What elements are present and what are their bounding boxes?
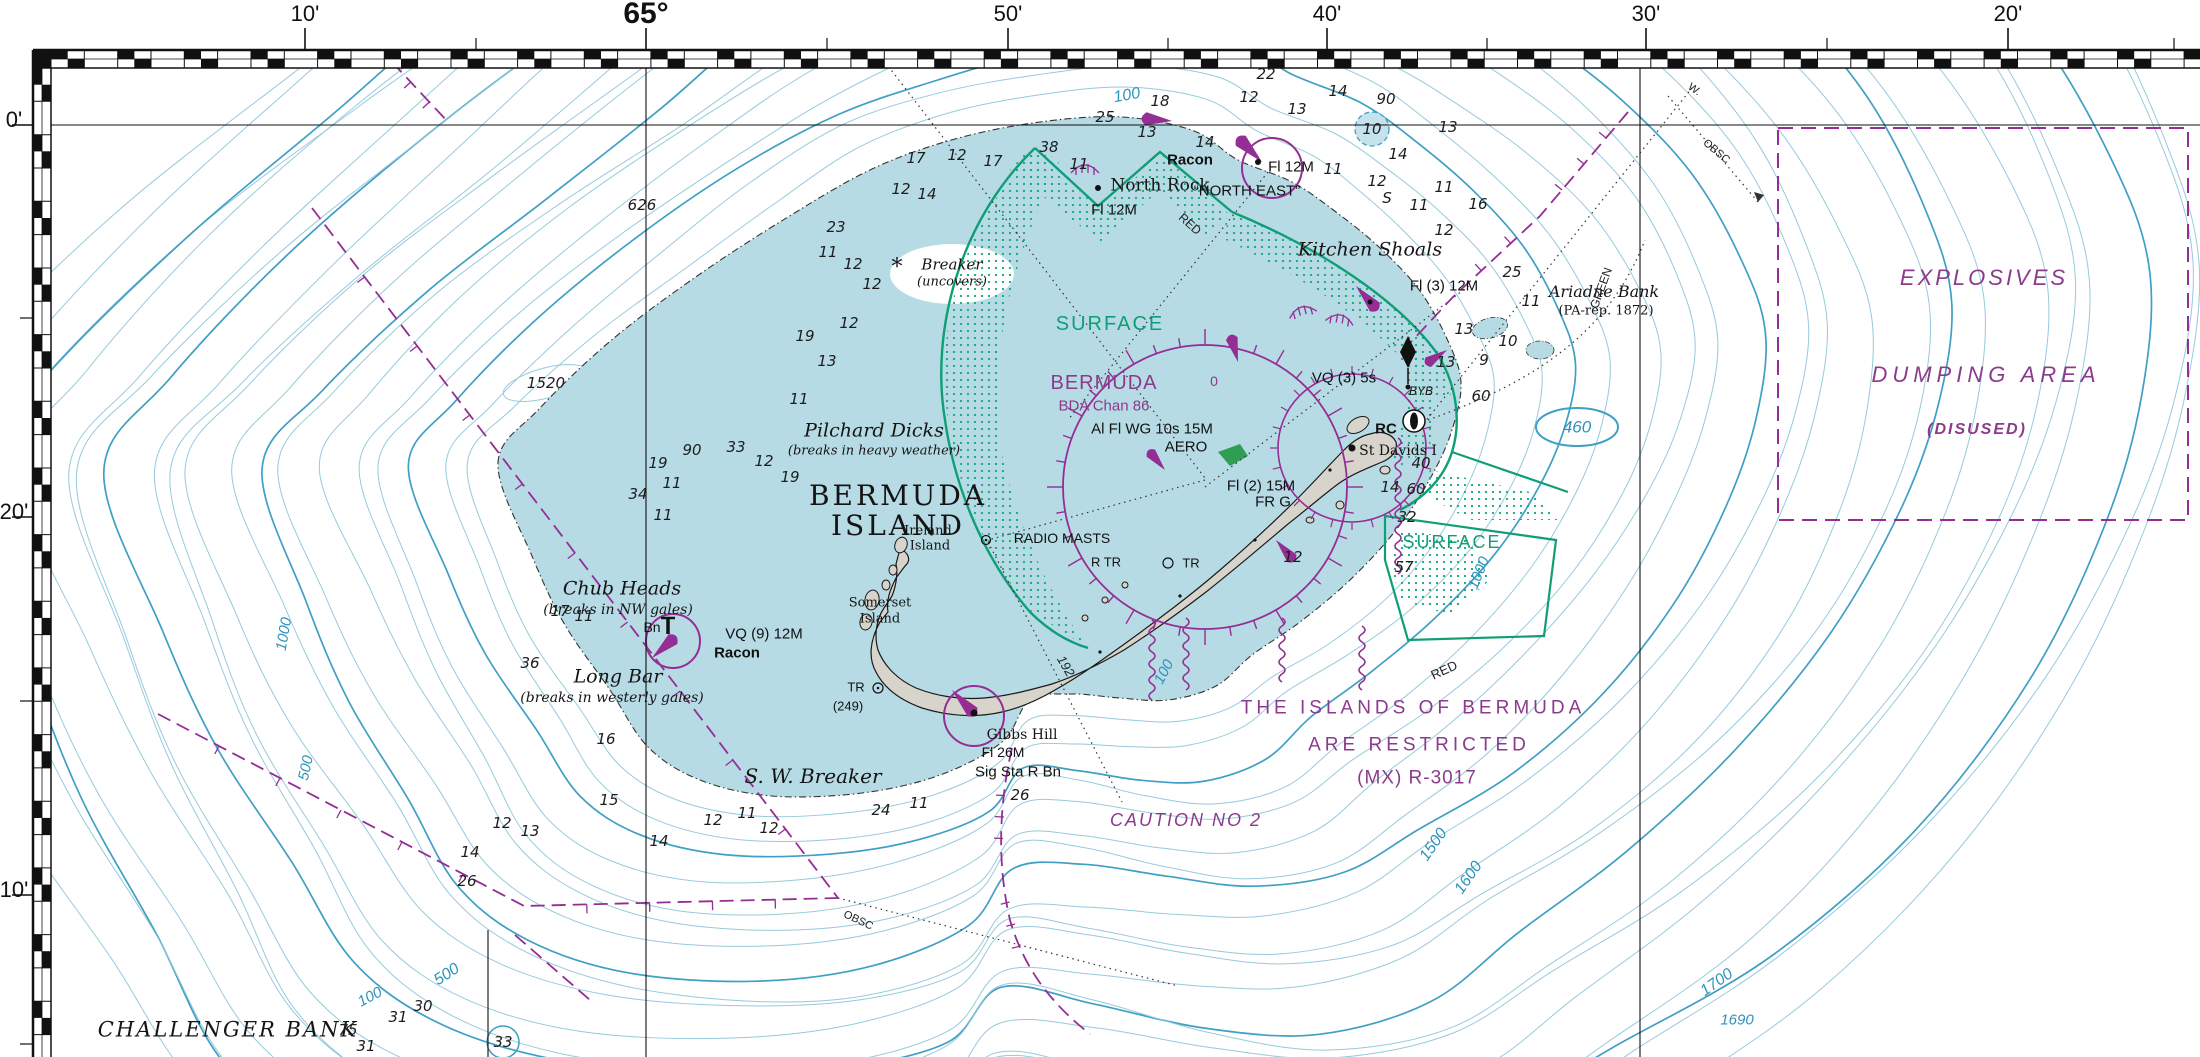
- nautical-chart-bermuda: 10'65°50'40'30'20'0'20'10' Breaker(uncov…: [0, 0, 2200, 1057]
- chart-graphics: [0, 0, 2200, 1057]
